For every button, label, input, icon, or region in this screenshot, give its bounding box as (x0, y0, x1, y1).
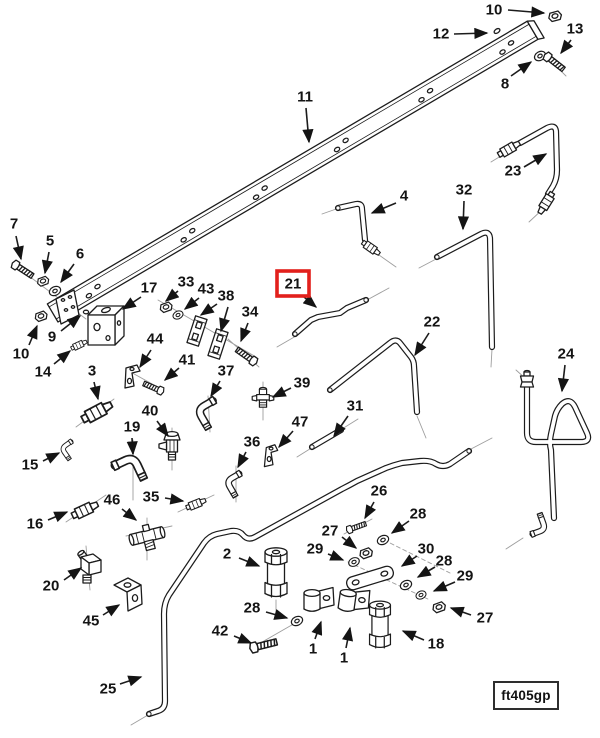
callout-43: 43 (198, 281, 215, 298)
figure-code: ft405gp (501, 688, 550, 703)
callout-5: 5 (46, 233, 54, 250)
callout-32: 32 (456, 182, 473, 199)
callout-34: 34 (242, 304, 259, 321)
callout-8: 8 (501, 76, 509, 93)
callout-24: 24 (558, 346, 575, 363)
callout-arrow-37 (211, 381, 220, 396)
part-35-fitting (185, 497, 207, 512)
callout-arrow-28 (266, 612, 287, 618)
part-42-bolt (249, 637, 278, 653)
part-28-washer-c (399, 579, 413, 592)
part-10-nut-lower (34, 310, 48, 322)
part-29-washer-a (347, 556, 360, 568)
exploded-parts-drawing: 1012138112343221222475617334338349101444… (0, 0, 600, 738)
callout-arrow-30 (402, 556, 417, 566)
callout-4: 4 (400, 188, 409, 205)
callout-18: 18 (428, 636, 445, 653)
part-18-coupling (370, 601, 391, 648)
callout-arrow-10 (29, 326, 37, 345)
callout-28: 28 (410, 506, 427, 523)
part-29-washer-b (415, 589, 428, 600)
part-26-bolt (345, 520, 367, 534)
callout-28: 28 (244, 600, 261, 617)
callout-arrow-38 (221, 307, 228, 331)
callout-20: 20 (43, 578, 60, 595)
callout-arrow-28 (392, 521, 409, 533)
callout-arrow-1 (346, 628, 350, 648)
callout-3: 3 (88, 363, 96, 380)
callout-arrow-43 (185, 298, 199, 309)
callout-arrow-35 (165, 498, 183, 501)
callout-arrow-26 (365, 502, 374, 518)
callout-19: 19 (124, 419, 141, 436)
part-6-washer (48, 285, 62, 298)
callout-29: 29 (457, 568, 474, 585)
callout-arrow-42 (234, 636, 251, 643)
callout-40: 40 (142, 403, 159, 420)
callout-arrow-10 (508, 10, 544, 13)
callout-44: 44 (147, 331, 164, 348)
part-33-nut (159, 301, 173, 313)
callout-arrow-19 (132, 438, 133, 454)
part-13-bolt (542, 51, 566, 73)
callout-28: 28 (436, 553, 453, 570)
callout-1: 1 (340, 650, 348, 667)
callout-arrow-2 (239, 558, 259, 566)
callout-arrow-22 (415, 333, 429, 355)
callout-47: 47 (292, 414, 309, 431)
callout-arrow-29 (328, 554, 343, 560)
callout-6: 6 (76, 246, 84, 263)
callout-33: 33 (178, 274, 195, 291)
callout-2: 2 (223, 546, 231, 563)
callout-39: 39 (294, 375, 311, 392)
callout-37: 37 (218, 363, 235, 380)
callout-23: 23 (505, 163, 522, 180)
part-14-plug (70, 339, 88, 352)
callout-arrow-12 (454, 33, 487, 34)
callout-7: 7 (10, 216, 18, 233)
callout-arrow-7 (16, 236, 21, 259)
callout-arrow-4 (372, 203, 396, 213)
callout-45: 45 (83, 613, 100, 630)
callout-arrow-38 (201, 304, 217, 315)
callout-arrow-21 (304, 297, 316, 307)
callout-31: 31 (347, 398, 364, 415)
part-22-tube (330, 341, 417, 413)
callout-arrow-8 (511, 62, 531, 76)
callout-10: 10 (486, 2, 503, 19)
callout-arrow-34 (241, 323, 248, 341)
callout-14: 14 (35, 364, 52, 381)
part-27-nut-b (432, 601, 447, 614)
callout-12: 12 (433, 26, 450, 43)
callout-21: 21 (285, 276, 302, 293)
callout-10: 10 (13, 346, 30, 363)
part-47-clamp (264, 445, 277, 467)
part-1-clamp-a (304, 588, 334, 612)
part-5-nut (36, 276, 50, 287)
part-30-strap (345, 565, 395, 591)
callout-arrow-41 (165, 368, 179, 380)
callout-arrow-11 (306, 108, 309, 142)
part-4-fitting (360, 239, 381, 257)
callout-22: 22 (424, 314, 441, 331)
part-40-fitting (159, 432, 180, 460)
part-38-plate-b (208, 329, 228, 359)
callout-30: 30 (418, 541, 435, 558)
callout-38: 38 (218, 288, 235, 305)
callout-46: 46 (104, 492, 121, 509)
callout-9: 9 (48, 329, 56, 346)
callout-arrow-45 (103, 605, 119, 615)
part-16-fitting (70, 499, 99, 520)
callout-42: 42 (212, 623, 229, 640)
part-32-tube (437, 233, 492, 347)
part-10-nut (548, 10, 563, 22)
callout-arrow-24 (562, 365, 565, 391)
part-12-hole (493, 28, 501, 35)
callout-27: 27 (477, 610, 494, 627)
callout-arrow-28 (418, 567, 435, 577)
callout-arrow-27 (342, 537, 356, 548)
part-46-tee-fitting (127, 521, 168, 554)
part-19-elbow (111, 451, 147, 489)
callout-arrow-25 (120, 677, 141, 684)
callout-arrow-36 (238, 452, 246, 467)
callout-arrow-17 (123, 297, 141, 309)
part-24-tube (527, 387, 588, 518)
callout-29: 29 (307, 541, 324, 558)
part-25-tube (149, 451, 469, 714)
part-27-nut-a (359, 547, 374, 560)
part-23-tube (520, 127, 557, 194)
part-28-washer-b (376, 534, 390, 547)
part-3-fitting (80, 399, 114, 425)
callout-41: 41 (179, 352, 196, 369)
callout-16: 16 (27, 516, 44, 533)
callout-arrow-16 (48, 512, 67, 520)
part-21-tube (295, 300, 366, 334)
callout-arrow-1 (315, 622, 321, 639)
callout-arrow-46 (122, 509, 136, 520)
callout-arrow-6 (61, 264, 74, 282)
parts-diagram-page: 1012138112343221222475617334338349101444… (0, 0, 600, 738)
part-20-elbow-fitting (77, 550, 101, 583)
part-1-clamp-b (338, 587, 371, 615)
callout-arrow-3 (94, 382, 98, 399)
part-43-washer (172, 309, 185, 320)
part-4-tube (338, 204, 365, 240)
part-7-bolt (10, 259, 35, 279)
callout-arrow-5 (45, 252, 49, 273)
part-28-washer-a (290, 615, 304, 628)
callout-arrow-20 (64, 568, 81, 580)
part-24-fitting (521, 371, 534, 388)
callout-13: 13 (567, 21, 584, 38)
callout-arrow-27 (451, 608, 471, 615)
callout-layer: 1012138112343221222475617334338349101444… (10, 2, 584, 698)
callout-27: 27 (322, 523, 339, 540)
callout-arrow-23 (524, 154, 546, 167)
callout-arrow-32 (463, 201, 464, 229)
part-39-fitting (252, 387, 274, 407)
part-24-elbow (525, 512, 549, 537)
part-41-bolt (142, 380, 165, 396)
callout-arrow-18 (403, 631, 424, 640)
part-38-plate-a (187, 316, 207, 346)
part-34-bolt (234, 346, 259, 367)
callout-arrow-33 (166, 291, 178, 301)
callout-arrow-39 (273, 388, 291, 397)
callout-arrow-15 (43, 453, 59, 461)
callout-arrow-13 (561, 40, 571, 53)
callout-11: 11 (297, 89, 313, 106)
callout-arrow-44 (140, 350, 151, 367)
hardware (10, 10, 566, 653)
callout-arrow-47 (279, 431, 293, 447)
figure-code-box: ft405gp (493, 681, 559, 710)
callout-26: 26 (371, 483, 388, 500)
part-44-clamp (125, 365, 140, 388)
callout-arrow-29 (434, 582, 455, 591)
callout-arrow-40 (157, 421, 168, 436)
part-15-elbow (58, 439, 79, 461)
callout-35: 35 (143, 489, 160, 506)
callout-25: 25 (100, 681, 117, 698)
part-2-coupling (265, 548, 287, 597)
callout-1: 1 (309, 641, 317, 658)
part-17-block (88, 306, 124, 345)
callout-17: 17 (141, 280, 158, 297)
callout-36: 36 (244, 434, 261, 451)
callout-arrow-14 (54, 351, 70, 364)
callout-15: 15 (22, 457, 39, 474)
part-23-fitting-b (536, 190, 557, 215)
part-23-fitting-a (496, 139, 521, 159)
